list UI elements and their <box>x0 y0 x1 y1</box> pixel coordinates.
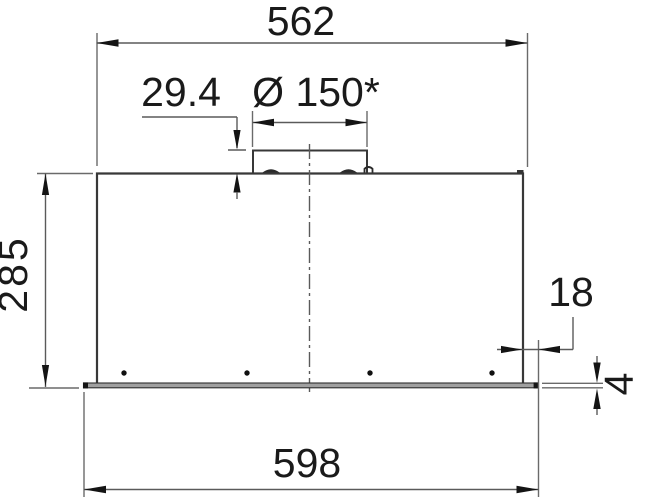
arrowhead-right-icon <box>346 119 368 126</box>
dimension-label: 4 <box>596 373 642 396</box>
mounting-rivets <box>121 370 494 375</box>
hood-dimension-diagram: 562 29.4 Ø 150* 285 18 <box>0 0 650 501</box>
hood-body-outline <box>97 170 524 383</box>
flange-bar <box>84 383 539 388</box>
technical-drawing-canvas: 562 29.4 Ø 150* 285 18 <box>0 0 650 501</box>
top-tab-right <box>340 169 357 172</box>
body-top-right-step <box>517 170 524 174</box>
dimension-label: 598 <box>273 440 341 486</box>
arrowhead-up-icon <box>42 174 49 196</box>
dimension-bottom-width-598: 598 <box>84 392 539 497</box>
dimension-label: 562 <box>267 0 335 44</box>
arrowhead-left-icon <box>97 39 119 47</box>
bottom-flange <box>83 382 539 388</box>
dimension-body-height-285: 285 <box>0 174 93 389</box>
rivet-dot <box>367 370 372 375</box>
dimension-collar-height-29-4: 29.4 <box>141 69 246 199</box>
arrowhead-right-icon <box>506 39 528 47</box>
rivet-dot <box>121 370 126 375</box>
flange-end-cap-left <box>83 382 88 388</box>
duct-collar <box>253 151 373 174</box>
arrowhead-down-icon <box>233 130 240 150</box>
arrowhead-down-icon <box>42 365 49 387</box>
top-tab-left <box>263 169 280 172</box>
dimension-label: 285 <box>0 235 36 312</box>
arrowhead-left-icon <box>539 346 561 353</box>
dimension-label: Ø 150* <box>252 69 380 115</box>
collar-bracket <box>365 167 373 173</box>
arrowhead-up-icon <box>233 173 240 193</box>
arrowhead-right-icon <box>501 346 523 353</box>
dimension-label: 29.4 <box>141 69 221 115</box>
rivet-dot <box>489 370 494 375</box>
arrowhead-left-icon <box>253 119 275 126</box>
arrowhead-left-icon <box>84 486 106 494</box>
dimension-label: 18 <box>548 269 594 315</box>
arrowhead-right-icon <box>517 486 539 494</box>
rivet-dot <box>244 370 249 375</box>
dimension-flange-thickness-4: 4 <box>542 356 642 415</box>
dimension-duct-diameter-150: Ø 150* <box>252 69 380 147</box>
